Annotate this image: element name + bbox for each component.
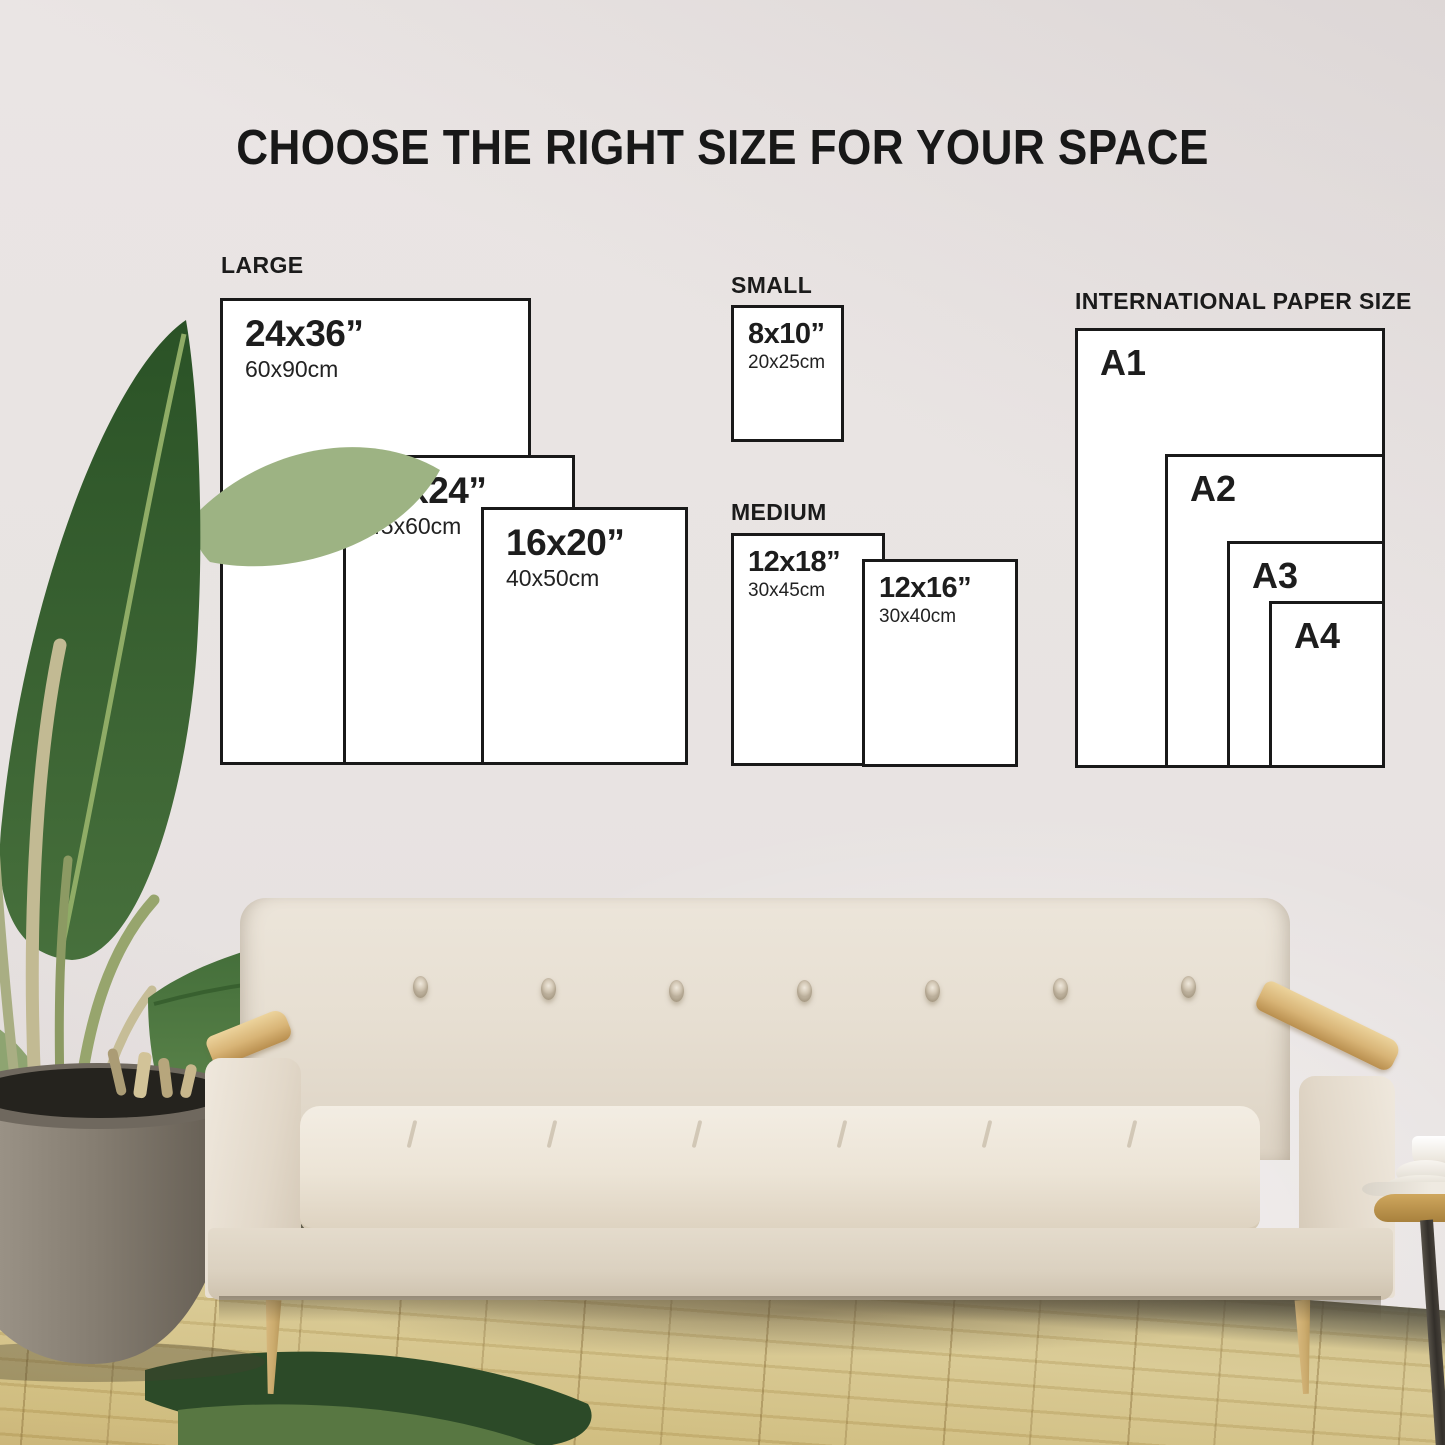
size-name: A3 xyxy=(1252,556,1382,596)
size-frame-12x16: 12x16” 30x40cm xyxy=(862,559,1018,767)
group-label-small: SMALL xyxy=(731,272,812,299)
size-name: A4 xyxy=(1294,616,1382,656)
size-name: A1 xyxy=(1100,343,1382,383)
cushion-dimple xyxy=(982,1120,993,1148)
plant-leaf-back xyxy=(194,447,440,566)
sofa-tufting-button xyxy=(1181,976,1196,998)
cushion-dimple xyxy=(547,1120,558,1148)
sofa-tufting-button xyxy=(797,980,812,1002)
cushion-dimple xyxy=(692,1120,703,1148)
size-cm: 30x40cm xyxy=(879,606,1015,627)
size-inches: 12x16” xyxy=(879,572,1015,604)
sofa xyxy=(205,898,1395,1398)
size-inches: 8x10” xyxy=(748,318,841,350)
group-label-international: INTERNATIONAL PAPER SIZE xyxy=(1075,288,1412,315)
size-guide-scene: CHOOSE THE RIGHT SIZE FOR YOUR SPACE LAR… xyxy=(0,0,1445,1445)
cushion-dimple xyxy=(837,1120,848,1148)
size-frame-8x10: 8x10” 20x25cm xyxy=(731,305,844,442)
table-wood-edge xyxy=(1374,1194,1445,1222)
table-leg xyxy=(1420,1220,1445,1445)
sofa-base xyxy=(208,1228,1393,1300)
page-title: CHOOSE THE RIGHT SIZE FOR YOUR SPACE xyxy=(72,120,1373,176)
plant-stem xyxy=(59,860,68,1092)
sofa-tufting-button xyxy=(925,980,940,1002)
cushion-dimple xyxy=(1127,1120,1138,1148)
sofa-leg-left xyxy=(257,1300,286,1395)
sofa-tufting-button xyxy=(1053,978,1068,1000)
sofa-tufting-button xyxy=(541,978,556,1000)
sofa-seat-cushion xyxy=(300,1106,1260,1232)
sofa-tufting-button xyxy=(413,976,428,998)
sofa-tufting-button xyxy=(669,980,684,1002)
cushion-dimple xyxy=(407,1120,418,1148)
side-table xyxy=(1358,1130,1445,1445)
size-frame-a4: A4 xyxy=(1269,601,1385,768)
size-cm: 20x25cm xyxy=(748,352,841,373)
group-label-large: LARGE xyxy=(221,252,304,279)
sofa-leg-right xyxy=(1289,1300,1318,1395)
size-name: A2 xyxy=(1190,469,1382,509)
group-label-medium: MEDIUM xyxy=(731,499,827,526)
